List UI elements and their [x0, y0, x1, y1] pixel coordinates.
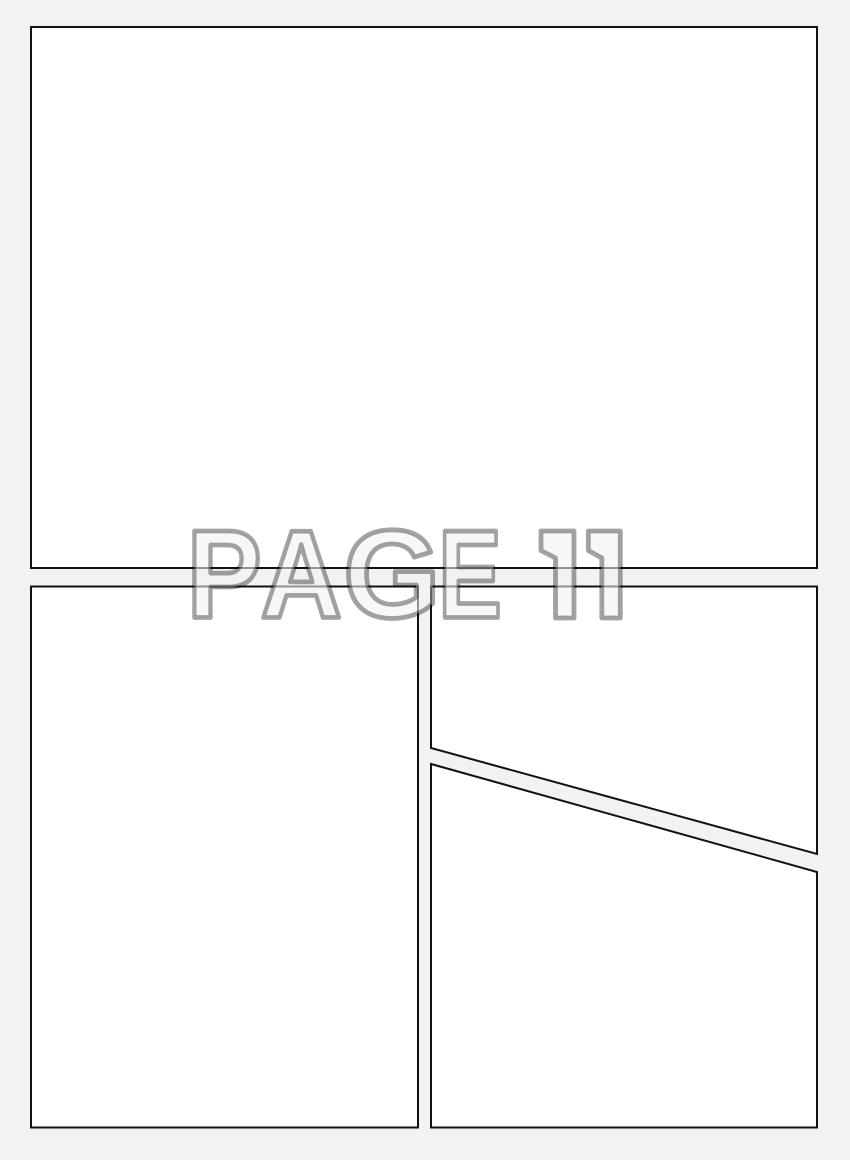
svg-text:G: G [343, 506, 440, 645]
svg-text:P: P [187, 506, 262, 645]
svg-text:A: A [261, 506, 343, 645]
svg-text:E: E [438, 506, 502, 645]
